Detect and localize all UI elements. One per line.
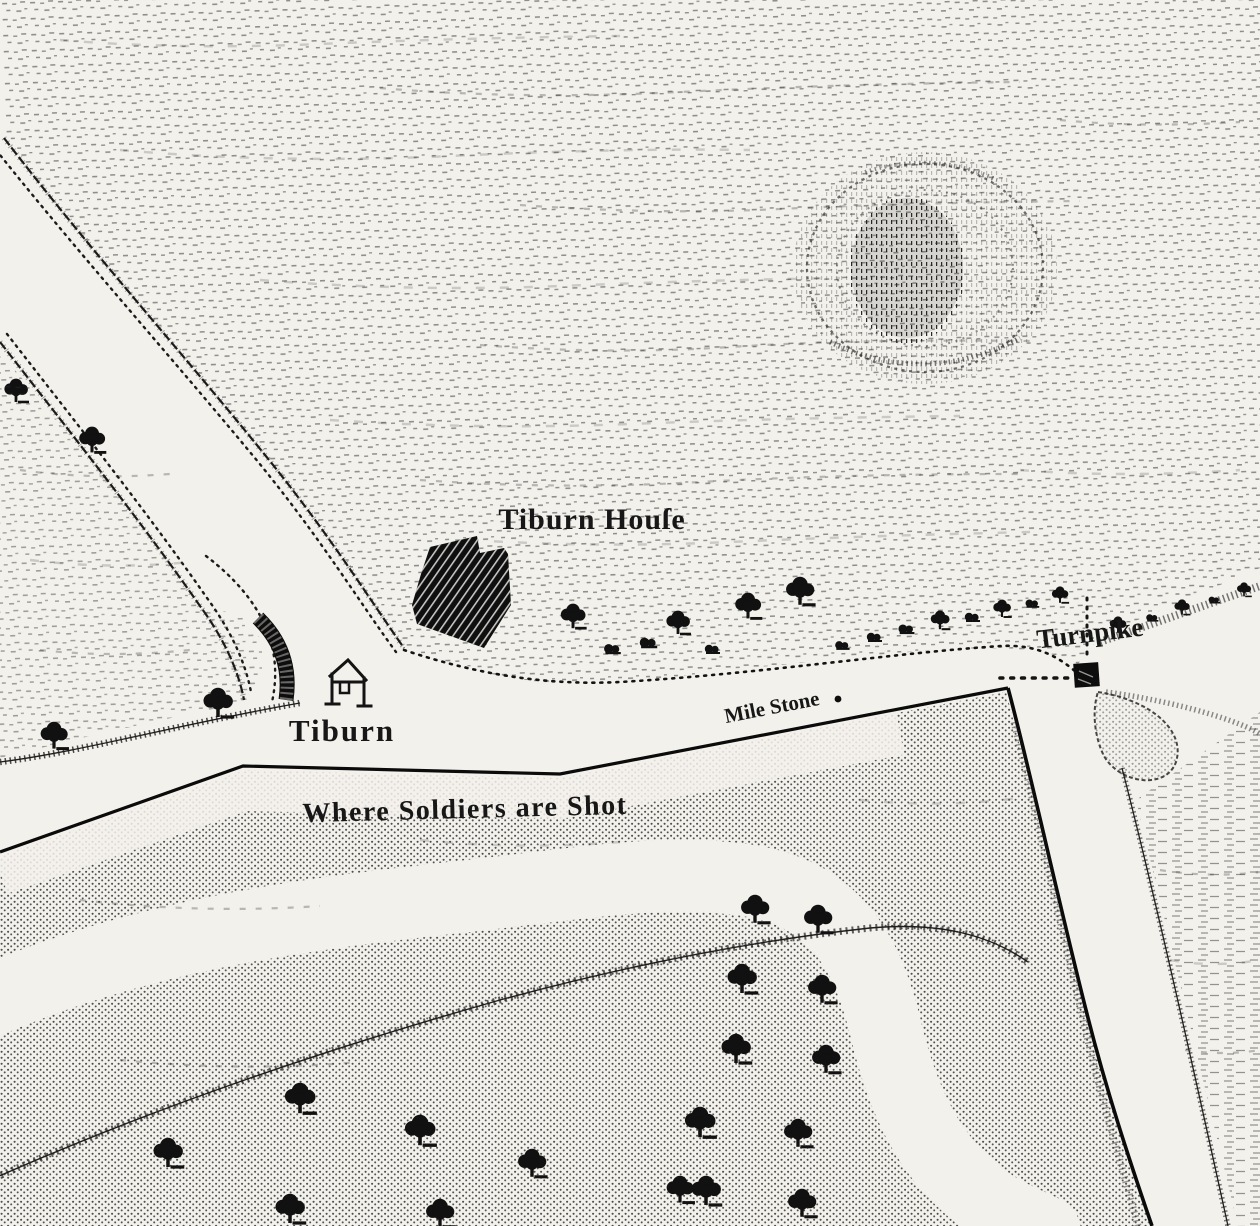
label-tiburn: Tiburn [289, 713, 395, 748]
tree-clump-icon [793, 152, 1057, 384]
engraved-map-canvas: Tiburn Houſe Turnpike Tiburn Mile Stone … [0, 0, 1260, 1226]
milestone-dot-icon [835, 696, 842, 703]
map-drawing: Tiburn Houſe Turnpike Tiburn Mile Stone … [0, 0, 1260, 1226]
label-tiburn-house: Tiburn Houſe [498, 503, 685, 536]
